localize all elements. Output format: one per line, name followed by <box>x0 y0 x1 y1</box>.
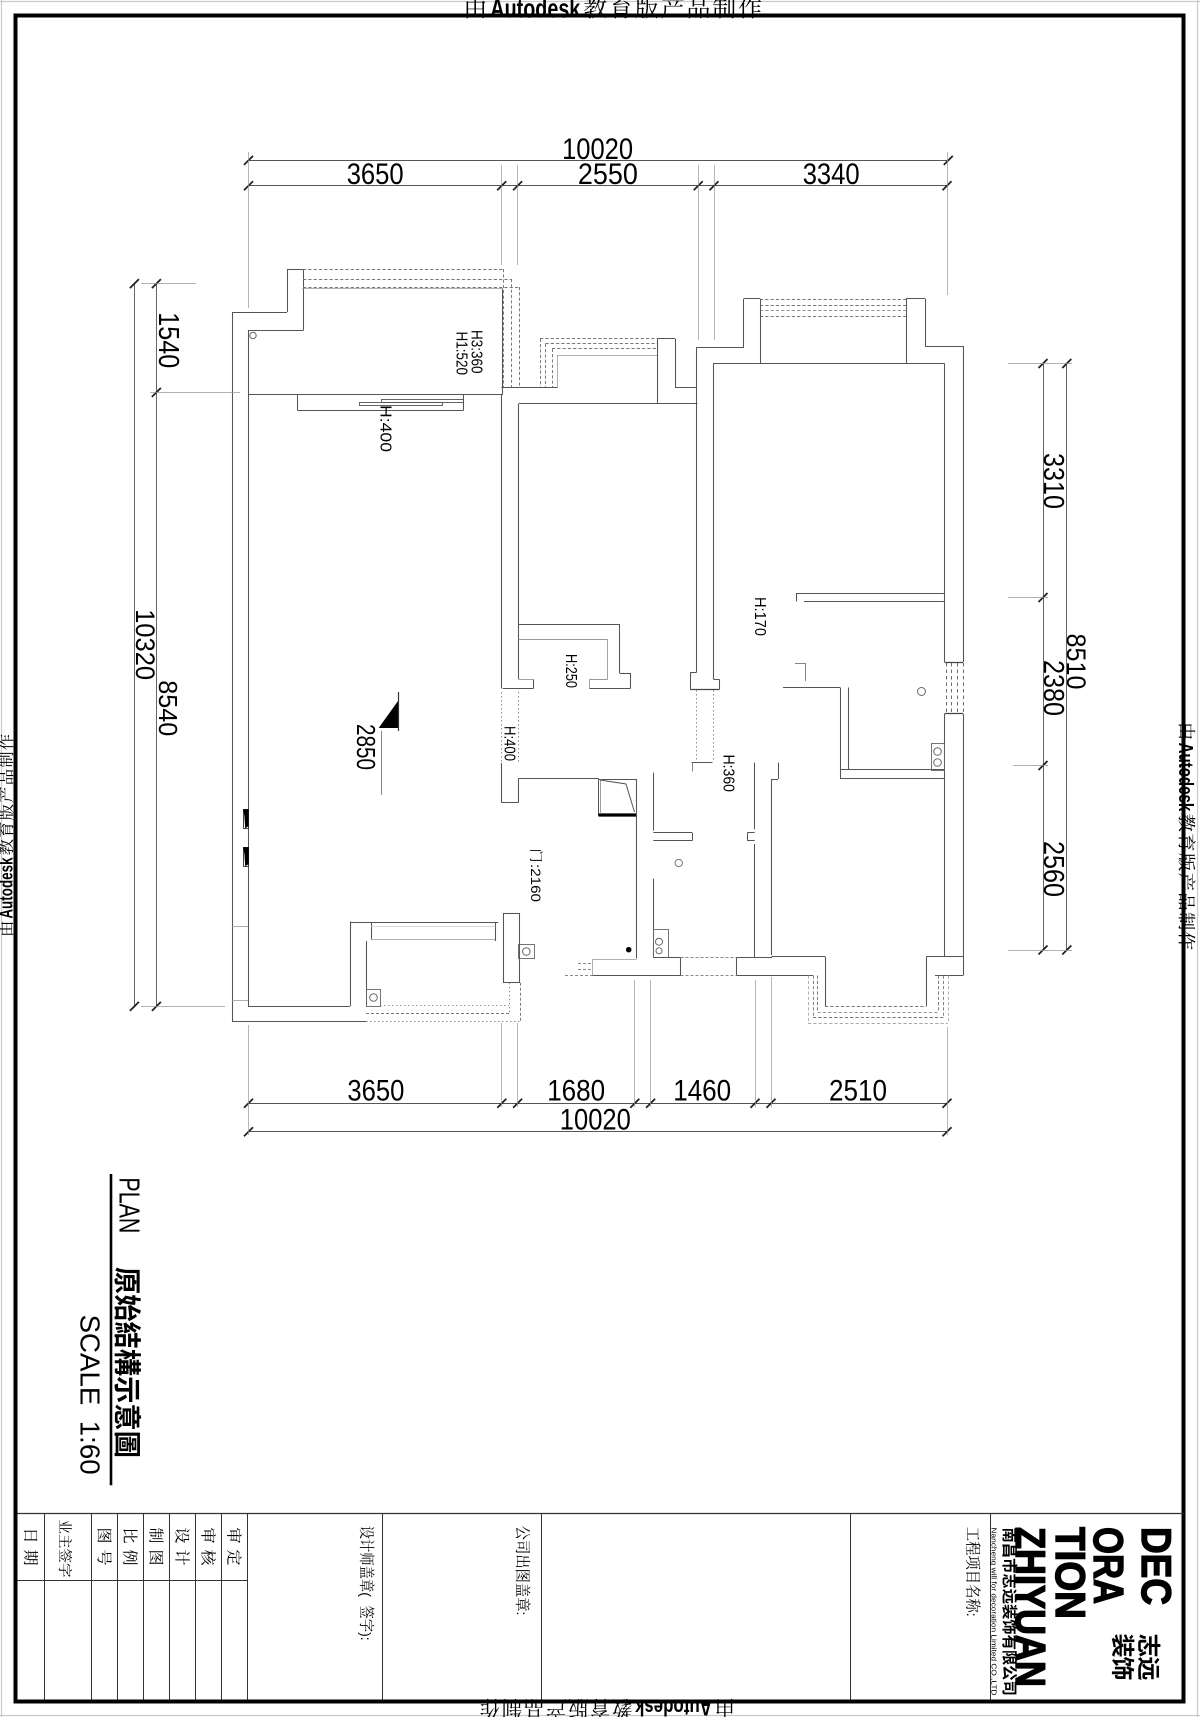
svg-text:Nancheng will for decoration L: Nancheng will for decoration Limited CO.… <box>990 1528 999 1697</box>
svg-text:H:250: H:250 <box>562 654 579 688</box>
svg-text:3310: 3310 <box>1037 453 1069 509</box>
svg-text:H1:520: H1:520 <box>453 332 470 376</box>
svg-text:10020: 10020 <box>560 1103 631 1136</box>
svg-text:Autodesk: Autodesk <box>635 1695 712 1717</box>
svg-text:H:400: H:400 <box>501 726 518 761</box>
svg-text:1540: 1540 <box>152 312 184 368</box>
svg-text::: : <box>514 1612 530 1616</box>
svg-text:H:400: H:400 <box>377 405 394 452</box>
svg-text::: : <box>964 1613 980 1617</box>
svg-text:Autodesk: Autodesk <box>1174 743 1197 812</box>
svg-text:2550: 2550 <box>578 158 638 191</box>
svg-text:3650: 3650 <box>347 158 404 191</box>
svg-text:DEC: DEC <box>1133 1527 1180 1605</box>
svg-text:3650: 3650 <box>347 1074 404 1107</box>
svg-text:3340: 3340 <box>803 158 860 191</box>
svg-text:):: ): <box>358 1632 374 1641</box>
svg-text:H:360: H:360 <box>720 755 737 793</box>
svg-text:PLAN: PLAN <box>113 1177 145 1233</box>
svg-text:2510: 2510 <box>829 1074 887 1107</box>
svg-text:Autodesk: Autodesk <box>0 857 17 919</box>
svg-text:1460: 1460 <box>673 1074 731 1107</box>
svg-text:SCALE 1:60: SCALE 1:60 <box>74 1315 105 1475</box>
svg-text:8540: 8540 <box>153 680 183 736</box>
svg-text:ZHIYUAN: ZHIYUAN <box>1007 1527 1054 1687</box>
svg-text:10320: 10320 <box>130 609 160 680</box>
svg-text::2160: :2160 <box>528 864 544 902</box>
svg-text:2850: 2850 <box>351 724 381 770</box>
svg-text:8510: 8510 <box>1061 634 1091 690</box>
svg-text:Autodesk: Autodesk <box>490 0 581 24</box>
svg-text:(: ( <box>358 1592 374 1597</box>
svg-text:2560: 2560 <box>1037 841 1069 897</box>
svg-text:H:170: H:170 <box>751 597 768 636</box>
